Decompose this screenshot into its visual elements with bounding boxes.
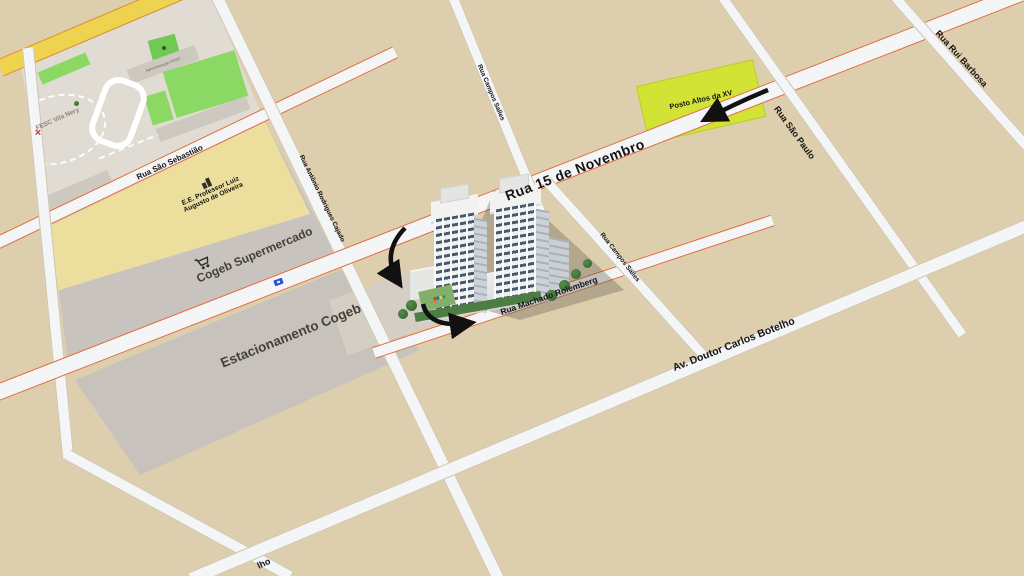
map-canvas: Administração FESC × (0, 0, 1024, 576)
mosaic-tile (442, 295, 446, 299)
tower-b-facade (494, 202, 536, 301)
tree-marker (398, 309, 408, 319)
tower-b-side (536, 209, 549, 302)
mosaic-tile (437, 299, 441, 303)
tree-marker (583, 259, 592, 268)
tree-marker (406, 300, 417, 311)
bus-stop-glyph (277, 281, 281, 284)
tower-a-side (474, 218, 487, 314)
tree-marker (571, 269, 581, 279)
street-rua-sao-paulo (715, 0, 967, 338)
court-center-dot (162, 46, 167, 51)
tree-marker (74, 101, 79, 106)
